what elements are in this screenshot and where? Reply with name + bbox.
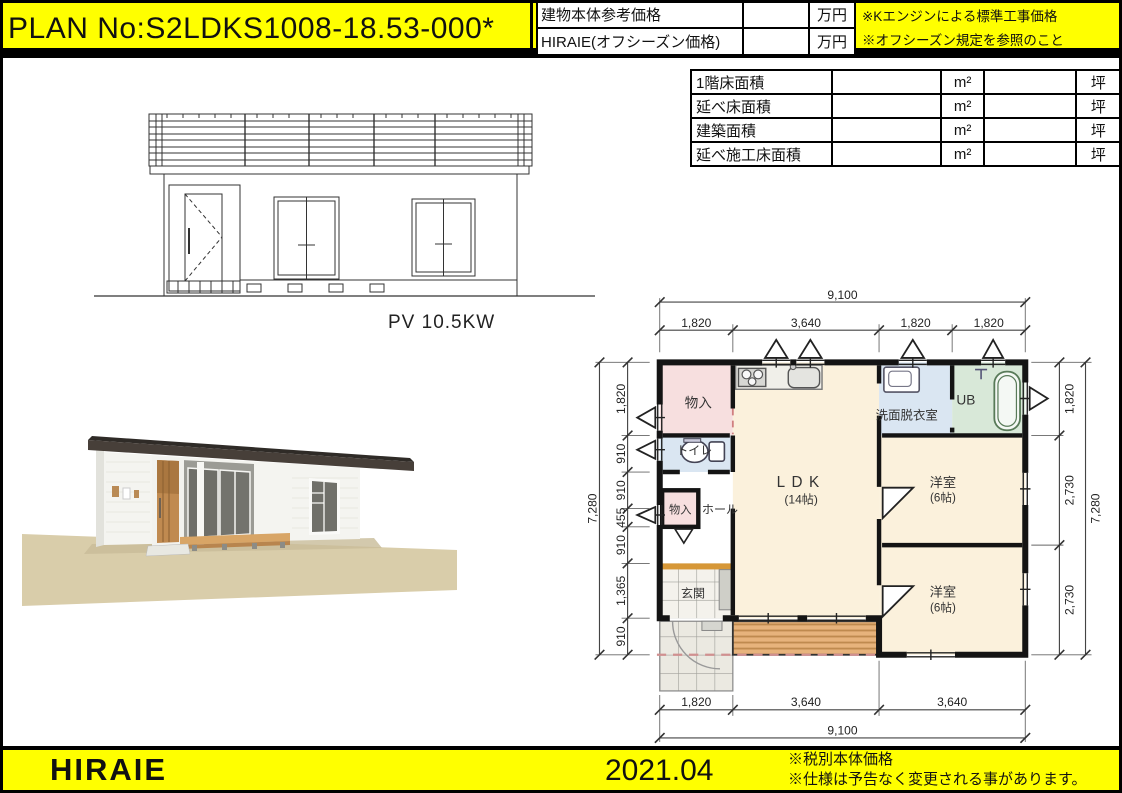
room-label-bath: UB: [956, 393, 975, 408]
stove-icon: [738, 368, 765, 386]
kitchen-counter: [736, 364, 822, 389]
house-3d-render: [22, 398, 457, 690]
price-unit: 万円: [809, 1, 855, 28]
entrance-porch: [660, 621, 733, 691]
plan-number: PLAN No:S2LDKS1008-18.53-000*: [0, 0, 533, 58]
price-row: HIRAIE(オフシーズン価格) 万円: [537, 28, 855, 55]
wall-edges: [164, 174, 517, 296]
room-label-closet: 物入: [685, 396, 713, 411]
fascia: [150, 166, 529, 174]
dim-left-seg: 910: [614, 535, 628, 555]
washbasin-icon: [884, 367, 919, 392]
dim-left-seg: 1,365: [614, 575, 628, 605]
footer-notes: ※税別本体価格 ※仕様は予告なく変更される事があります。: [788, 750, 1087, 790]
footer-note-line: ※仕様は予告なく変更される事があります。: [788, 770, 1087, 790]
sliding-window: [412, 199, 475, 276]
dim-top-seg: 1,820: [974, 316, 1004, 330]
area-row: 延べ施工床面積 m² 坪: [691, 142, 1121, 166]
dim-bottom-total: 9,100: [827, 723, 857, 737]
entrance-door-3d: [152, 456, 184, 546]
sink-icon: [788, 364, 819, 388]
dim-left-seg: 910: [614, 480, 628, 500]
room-label-toilet: トイレ: [676, 443, 712, 457]
dim-top-total: 9,100: [827, 288, 857, 302]
elevation-drawing: [92, 78, 597, 318]
dim-left-total: 7,280: [586, 493, 600, 523]
room-label-bedroom2-size: (6帖): [930, 600, 956, 614]
wood-deck: [733, 621, 879, 655]
area-value-tsubo: [984, 142, 1075, 166]
dim-top-seg: 3,640: [791, 316, 821, 330]
room-label-ldk-size: (14帖): [784, 492, 817, 507]
price-row: 建物本体参考価格 万円: [537, 1, 855, 28]
pv-capacity-label: PV 10.5KW: [388, 312, 495, 334]
dim-left-seg: 1,820: [614, 384, 628, 414]
area-unit-tsubo: 坪: [1076, 94, 1121, 118]
dim-right-seg: 2,730: [1062, 585, 1076, 615]
area-row: 延べ床面積 m² 坪: [691, 94, 1121, 118]
dim-bottom-seg: 1,820: [681, 695, 711, 709]
area-label: 1階床面積: [691, 70, 832, 94]
area-label: 建築面積: [691, 118, 832, 142]
area-unit-m2: m²: [941, 70, 984, 94]
area-value-tsubo: [984, 118, 1075, 142]
header-note-line: ※Kエンジンによる標準工事価格: [862, 5, 1064, 29]
room-label-closet-hall: 物入: [669, 502, 691, 516]
footer-banner: HIRAIE 2021.04 ※税別本体価格 ※仕様は予告なく変更される事があり…: [0, 746, 1122, 793]
sliding-window: [274, 197, 339, 279]
header-note-line: ※オフシーズン規定を参照のこと: [862, 29, 1064, 53]
area-label: 延べ床面積: [691, 94, 832, 118]
dim-right-total: 7,280: [1089, 493, 1103, 523]
dim-right-seg: 1,820: [1062, 384, 1076, 414]
area-table: 1階床面積 m² 坪 延べ床面積 m² 坪 建築面積 m² 坪 延べ施工床面積 …: [690, 69, 1122, 167]
area-label: 延べ施工床面積: [691, 142, 832, 166]
room-label-bedroom1-size: (6帖): [930, 491, 956, 505]
area-unit-m2: m²: [941, 94, 984, 118]
area-row: 1階床面積 m² 坪: [691, 70, 1121, 94]
area-value-tsubo: [984, 94, 1075, 118]
area-unit-m2: m²: [941, 142, 984, 166]
area-value-m2: [832, 118, 941, 142]
room-label-washroom: 洗面脱衣室: [876, 407, 938, 422]
entrance-door: [185, 194, 222, 281]
entrance-step-3d: [146, 544, 190, 556]
plan-sheet: { "header": { "plan_no": "PLAN No:S2LDKS…: [0, 0, 1122, 793]
price-value: [743, 1, 809, 28]
price-table: 建物本体参考価格 万円 HIRAIE(オフシーズン価格) 万円: [536, 0, 856, 56]
brand-logo: HIRAIE: [50, 752, 167, 788]
header-banner: PLAN No:S2LDKS1008-18.53-000* 建物本体参考価格 万…: [0, 0, 1122, 58]
price-label: HIRAIE(オフシーズン価格): [537, 28, 743, 55]
room-label-bedroom1: 洋室: [930, 474, 957, 490]
floor-plan: 物入 トイレ 物入 ホール 玄関 LDK (14帖) 洗面脱衣室 UB 洋室 (…: [575, 278, 1110, 754]
room-label-hall: ホール: [702, 502, 738, 516]
area-unit-tsubo: 坪: [1076, 142, 1121, 166]
price-label: 建物本体参考価格: [537, 1, 743, 28]
area-unit-tsubo: 坪: [1076, 118, 1121, 142]
price-unit: 万円: [809, 28, 855, 55]
dim-right-seg: 2,730: [1062, 475, 1076, 505]
side-wall: [96, 450, 104, 547]
area-row: 建築面積 m² 坪: [691, 118, 1121, 142]
area-unit-tsubo: 坪: [1076, 70, 1121, 94]
area-value-m2: [832, 94, 941, 118]
area-value-m2: [832, 142, 941, 166]
area-value-tsubo: [984, 70, 1075, 94]
dim-left-seg: 910: [614, 626, 628, 646]
area-value-m2: [832, 70, 941, 94]
footer-date: 2021.04: [605, 754, 713, 788]
dim-left-seg: 455: [614, 507, 628, 527]
header-notes: ※Kエンジンによる標準工事価格 ※オフシーズン規定を参照のこと: [862, 5, 1064, 53]
dim-top-seg: 1,820: [681, 316, 711, 330]
porch-post: [197, 462, 204, 545]
room-label-bedroom2: 洋室: [930, 584, 957, 600]
dim-bottom-seg: 3,640: [937, 695, 967, 709]
dim-bottom-seg: 3,640: [791, 695, 821, 709]
room-label-entrance: 玄関: [681, 585, 705, 600]
dim-top-seg: 1,820: [901, 316, 931, 330]
entrance-step-strip: [662, 563, 733, 569]
area-unit-m2: m²: [941, 118, 984, 142]
entrance-bay: [169, 185, 240, 291]
dim-left-seg: 910: [614, 443, 628, 463]
room-label-ldk: LDK: [777, 474, 826, 491]
price-value: [743, 28, 809, 55]
footer-note-line: ※税別本体価格: [788, 750, 1087, 770]
window-3d: [309, 478, 340, 535]
